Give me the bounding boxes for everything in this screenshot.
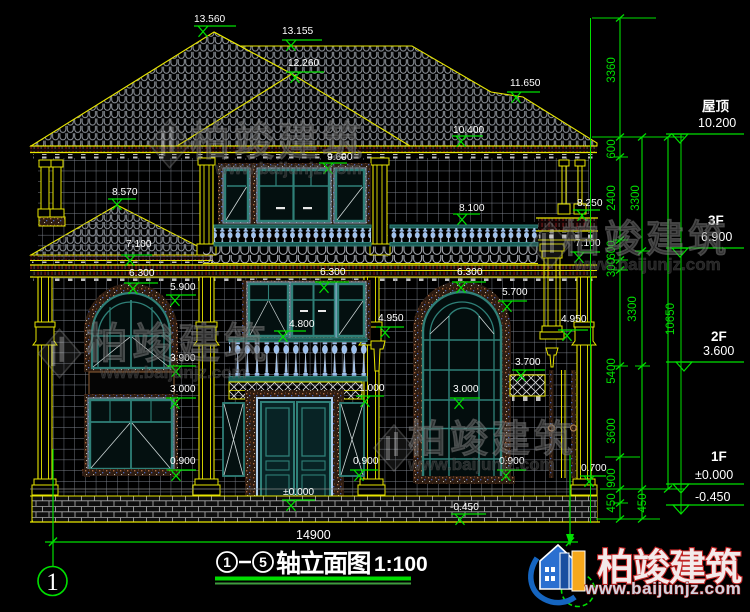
svg-text:屋顶: 屋顶 bbox=[702, 99, 730, 114]
svg-text:14900: 14900 bbox=[296, 528, 331, 542]
svg-text:6.300: 6.300 bbox=[129, 268, 155, 279]
svg-text:5.700: 5.700 bbox=[502, 287, 528, 298]
svg-text:5: 5 bbox=[259, 554, 267, 570]
svg-text:1: 1 bbox=[46, 569, 59, 596]
svg-text:8.250: 8.250 bbox=[577, 198, 603, 209]
svg-text:8.100: 8.100 bbox=[459, 203, 485, 214]
svg-text:4.950: 4.950 bbox=[378, 313, 404, 324]
svg-text:0.900: 0.900 bbox=[353, 456, 379, 467]
svg-text:6.300: 6.300 bbox=[457, 267, 483, 278]
svg-text:600: 600 bbox=[606, 139, 618, 158]
svg-text:5.900: 5.900 bbox=[170, 282, 196, 293]
svg-text:12.260: 12.260 bbox=[288, 58, 319, 69]
svg-text:3300: 3300 bbox=[627, 296, 639, 322]
svg-text:3.000: 3.000 bbox=[453, 384, 479, 395]
svg-text:0.900: 0.900 bbox=[170, 456, 196, 467]
svg-text:3360: 3360 bbox=[606, 57, 618, 83]
svg-text:柏竣建筑: 柏竣建筑 bbox=[190, 120, 366, 164]
svg-text:2400: 2400 bbox=[606, 185, 618, 211]
svg-text:13.155: 13.155 bbox=[282, 26, 313, 37]
svg-text:-0.450: -0.450 bbox=[450, 502, 479, 513]
svg-text:3300: 3300 bbox=[630, 185, 642, 211]
svg-text:2F: 2F bbox=[711, 329, 727, 344]
svg-text:3.600: 3.600 bbox=[703, 344, 734, 358]
svg-text:4.800: 4.800 bbox=[289, 319, 315, 330]
svg-text:10.400: 10.400 bbox=[453, 125, 484, 136]
svg-text:www.baijunjz.com: www.baijunjz.com bbox=[407, 455, 555, 474]
svg-text:柏竣建筑: 柏竣建筑 bbox=[86, 320, 270, 367]
svg-text:3.000: 3.000 bbox=[170, 384, 196, 395]
svg-text:0.700: 0.700 bbox=[581, 463, 607, 474]
svg-text:1.000: 1.000 bbox=[359, 383, 385, 394]
svg-text:1F: 1F bbox=[711, 449, 727, 464]
svg-text:10650: 10650 bbox=[665, 303, 677, 335]
svg-text:1:100: 1:100 bbox=[374, 553, 428, 576]
svg-text:900: 900 bbox=[606, 468, 618, 487]
svg-text:11.650: 11.650 bbox=[510, 78, 541, 89]
svg-text:www.baijunjz.com: www.baijunjz.com bbox=[573, 255, 721, 274]
svg-text:3.700: 3.700 bbox=[515, 357, 541, 368]
svg-text:4.950: 4.950 bbox=[561, 314, 587, 325]
svg-text:±0.000: ±0.000 bbox=[283, 487, 314, 498]
svg-text:www.baijunjz.com: www.baijunjz.com bbox=[214, 159, 362, 178]
svg-text:13.560: 13.560 bbox=[194, 14, 225, 25]
svg-text:1: 1 bbox=[223, 554, 231, 570]
svg-text:3600: 3600 bbox=[606, 418, 618, 444]
svg-text:轴立面图: 轴立面图 bbox=[276, 549, 371, 578]
svg-text:8.570: 8.570 bbox=[112, 187, 138, 198]
svg-text:±0.000: ±0.000 bbox=[695, 468, 733, 482]
svg-text:450: 450 bbox=[637, 493, 649, 512]
svg-text:www.baijunjz.com: www.baijunjz.com bbox=[99, 363, 247, 382]
svg-text:5400: 5400 bbox=[606, 358, 618, 384]
svg-text:www.baijunjz.com: www.baijunjz.com bbox=[584, 579, 741, 598]
svg-text:10.200: 10.200 bbox=[698, 116, 736, 130]
svg-text:450: 450 bbox=[606, 493, 618, 512]
svg-text:6.300: 6.300 bbox=[320, 267, 346, 278]
svg-text:7.100: 7.100 bbox=[126, 239, 152, 250]
svg-text:-0.450: -0.450 bbox=[695, 490, 730, 504]
